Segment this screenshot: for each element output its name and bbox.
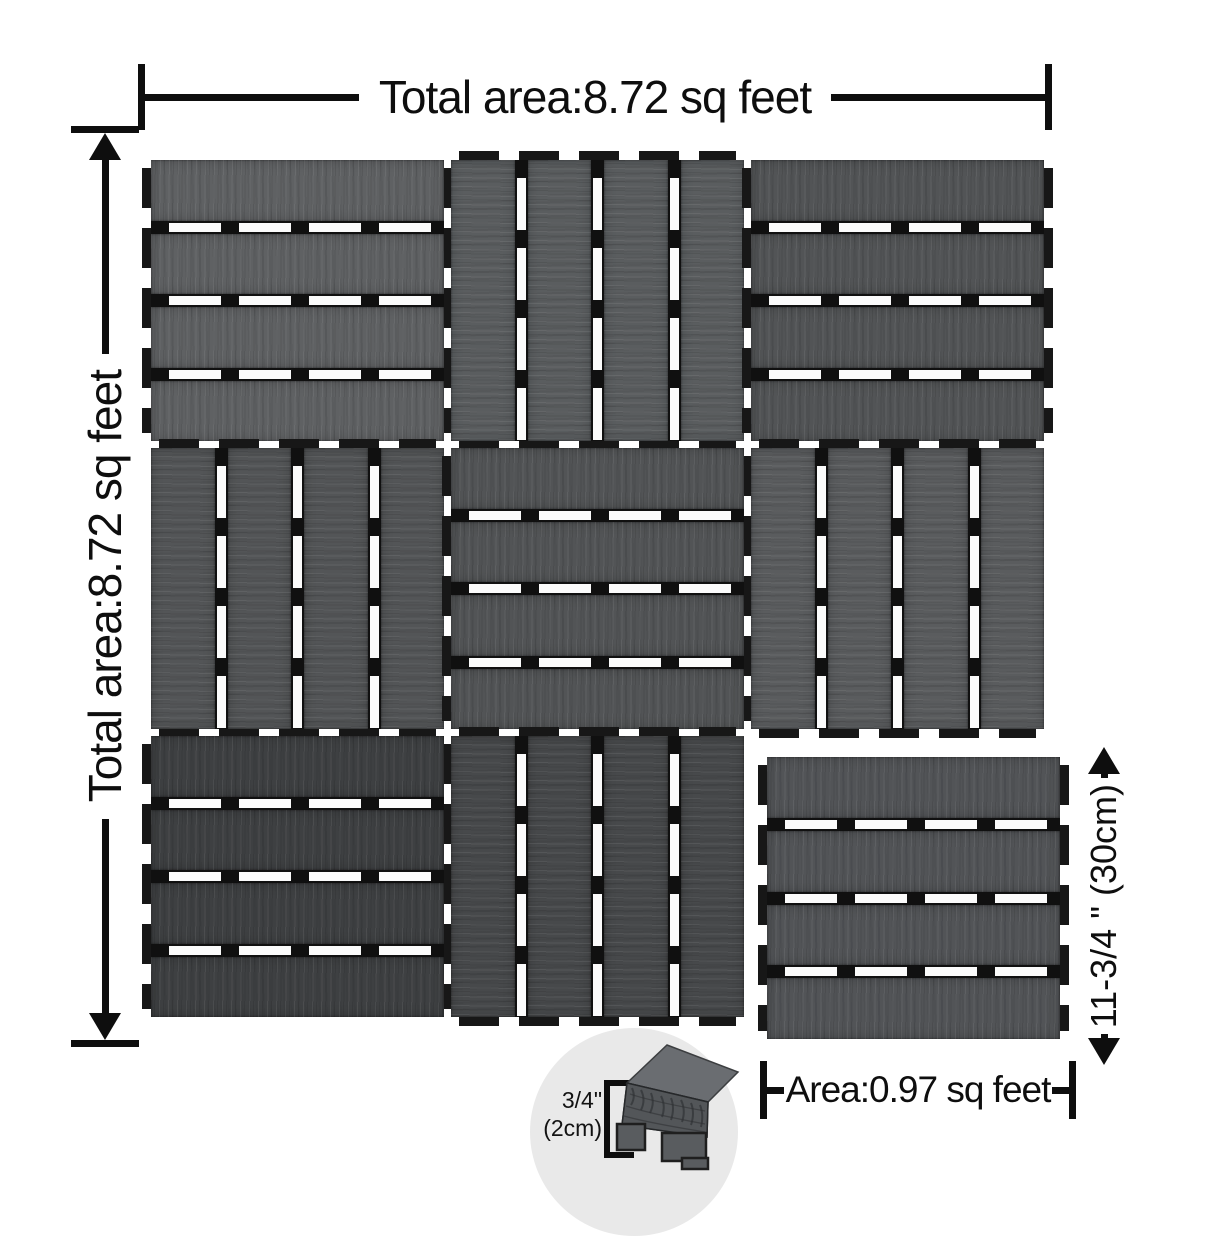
- dimension-end-tick: [760, 1061, 767, 1119]
- slat-gap: [767, 818, 1060, 831]
- tile-slat: [751, 448, 815, 729]
- tile-slat: [981, 448, 1045, 729]
- tile-slat: [681, 160, 745, 441]
- single-tile-height-label: 11-3/4 " (30cm): [1083, 778, 1125, 1034]
- tile-slat: [751, 160, 1044, 221]
- slat-gap: [815, 448, 828, 729]
- tile-slat: [767, 905, 1060, 966]
- slat-gap: [668, 736, 681, 1017]
- tile-slat: [451, 160, 515, 441]
- slat-gap: [151, 870, 444, 883]
- top-total-area-dimension: Total area:8.72 sq feet: [138, 64, 1052, 130]
- tile-slat: [751, 381, 1044, 442]
- thickness-cm: (2cm): [538, 1114, 602, 1142]
- tile-slat: [151, 810, 444, 871]
- tile-slat: [451, 669, 744, 730]
- deck-tile: [767, 757, 1060, 1039]
- tile-slat: [751, 234, 1044, 295]
- slat-gap: [368, 448, 381, 729]
- slat-gap: [891, 448, 904, 729]
- tile-slat: [304, 448, 368, 729]
- dimension-line: [831, 94, 1045, 101]
- tile-slat: [904, 448, 968, 729]
- arrow-down-icon: [89, 1013, 121, 1040]
- dimension-line: [102, 819, 109, 1013]
- tile-slat: [381, 448, 445, 729]
- tile-slat: [151, 381, 444, 442]
- slat-gap: [767, 892, 1060, 905]
- slat-gap: [591, 160, 604, 441]
- slat-gap: [591, 736, 604, 1017]
- dimension-line: [145, 94, 359, 101]
- tile-slat: [604, 160, 668, 441]
- tile-slat: [151, 234, 444, 295]
- slat-gap: [215, 448, 228, 729]
- slat-gap: [515, 736, 528, 1017]
- slat-gap: [291, 448, 304, 729]
- dimension-end-tick: [1069, 1061, 1076, 1119]
- tile-slat: [681, 736, 745, 1017]
- slat-gap: [751, 221, 1044, 234]
- tile-slat: [451, 448, 744, 509]
- tile-slat: [451, 736, 515, 1017]
- dimension-end-cap: [71, 1040, 139, 1047]
- tile-slat: [228, 448, 292, 729]
- slat-gap: [668, 160, 681, 441]
- deck-tile: [451, 736, 744, 1017]
- slat-gap: [968, 448, 981, 729]
- tile-slat: [151, 160, 444, 221]
- tile-slat: [151, 307, 444, 368]
- tile-slat: [767, 757, 1060, 818]
- tile-slat: [528, 736, 592, 1017]
- arrow-up-icon: [89, 133, 121, 160]
- slat-gap: [767, 965, 1060, 978]
- single-tile-height-dimension: 11-3/4 " (30cm): [1070, 747, 1138, 1059]
- tile-slat: [528, 160, 592, 441]
- product-dimension-diagram: { "annotations": { "total_area_top": "To…: [0, 0, 1214, 1214]
- total-area-left-label: Total area:8.72 sq feet: [78, 354, 132, 818]
- slat-gap: [451, 656, 744, 669]
- slat-gap: [751, 294, 1044, 307]
- slat-gap: [451, 582, 744, 595]
- deck-tile: [751, 160, 1044, 441]
- dimension-line: [767, 1087, 784, 1094]
- slat-gap: [151, 221, 444, 234]
- thickness-label: 3/4" (2cm): [538, 1086, 602, 1142]
- tile-slat: [451, 595, 744, 656]
- slat-gap: [151, 294, 444, 307]
- single-tile-area-label: Area:0.97 sq feet: [784, 1069, 1053, 1111]
- slat-gap: [451, 509, 744, 522]
- tile-cross-section-icon: [608, 1036, 740, 1182]
- deck-tile: [451, 160, 744, 441]
- deck-tile: [151, 736, 444, 1017]
- slat-gap: [151, 944, 444, 957]
- deck-tile: [151, 448, 444, 729]
- tile-slat: [151, 736, 444, 797]
- tile-slat: [828, 448, 892, 729]
- arrow-down-icon: [1088, 1038, 1120, 1065]
- deck-tile: [451, 448, 744, 729]
- total-area-top-label: Total area:8.72 sq feet: [359, 70, 831, 124]
- dimension-end-cap: [71, 126, 139, 133]
- thickness-inches: 3/4": [538, 1086, 602, 1114]
- tile-slat: [151, 883, 444, 944]
- tile-slat: [767, 831, 1060, 892]
- arrow-up-icon: [1088, 747, 1120, 774]
- dimension-line: [102, 160, 109, 354]
- slat-gap: [515, 160, 528, 441]
- left-total-area-dimension: Total area:8.72 sq feet: [71, 126, 139, 1047]
- slat-gap: [751, 368, 1044, 381]
- slat-gap: [151, 368, 444, 381]
- single-tile: [767, 757, 1060, 1039]
- dimension-end-tick: [1045, 64, 1052, 130]
- tile-slat: [451, 522, 744, 583]
- tile-slat: [151, 957, 444, 1018]
- deck-tile: [151, 160, 444, 441]
- tile-slat: [751, 307, 1044, 368]
- tile-slat: [151, 448, 215, 729]
- tile-slat: [767, 978, 1060, 1039]
- dimension-line: [1052, 1087, 1069, 1094]
- tile-slat: [604, 736, 668, 1017]
- deck-tile: [751, 448, 1044, 729]
- thickness-inset-circle: 3/4" (2cm): [530, 1028, 738, 1236]
- slat-gap: [151, 797, 444, 810]
- single-tile-area-dimension: Area:0.97 sq feet: [760, 1060, 1076, 1120]
- dimension-end-tick: [138, 64, 145, 130]
